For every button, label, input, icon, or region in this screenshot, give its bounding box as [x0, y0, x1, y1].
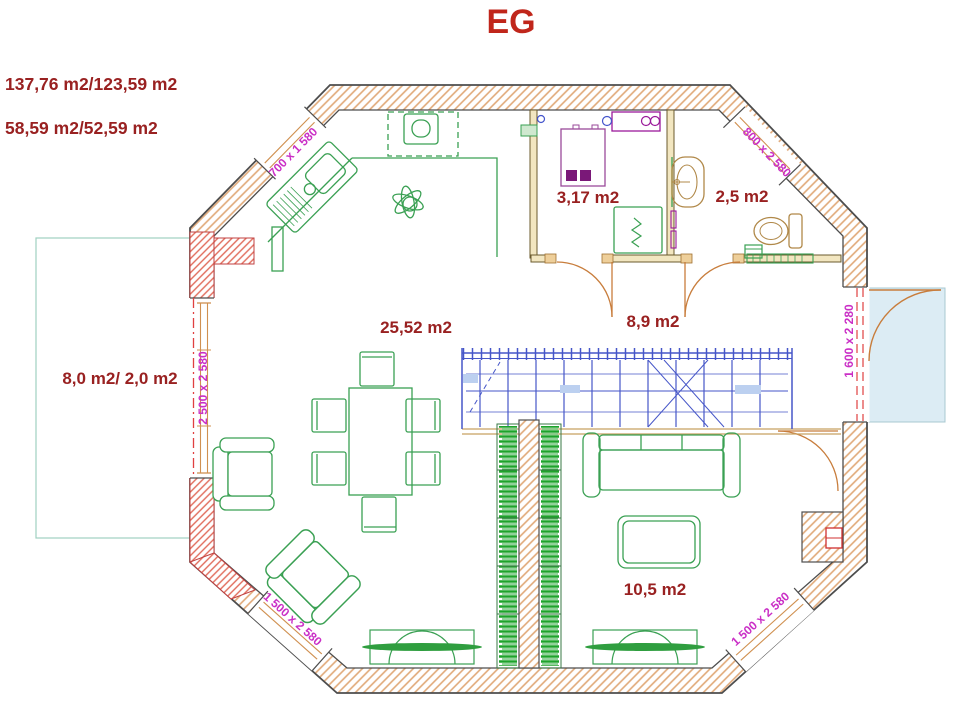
- label-living-dining: 25,52 m2: [380, 318, 452, 337]
- wall-pier-fireplace: [802, 512, 843, 562]
- plant-sideboard: [362, 630, 482, 664]
- connection-point: [603, 117, 612, 126]
- wall-vent: [521, 125, 537, 136]
- summary-line-2: 58,59 m2/52,59 m2: [5, 118, 158, 138]
- stair-steps: [480, 360, 760, 427]
- window-top-left-opening: [254, 107, 326, 179]
- washer-control: [566, 170, 577, 181]
- sofa-armrest: [723, 433, 740, 497]
- wc-door-arc: [685, 262, 740, 317]
- label-hall: 8,9 m2: [627, 312, 680, 331]
- stove: [404, 114, 438, 144]
- plant: [391, 185, 425, 219]
- connection-point: [538, 116, 545, 123]
- utility-door-arc: [557, 262, 612, 317]
- sofa-armrest: [583, 433, 600, 497]
- terrace-right: [869, 288, 945, 422]
- stove-burner: [412, 120, 430, 137]
- dining-set: [312, 352, 440, 532]
- summary-line-1: 137,76 m2/123,59 m2: [5, 74, 177, 94]
- dim-door-right: 1 600 x 2 280: [842, 304, 856, 378]
- upper-cabinets: [388, 112, 458, 156]
- terrace-left: [36, 238, 190, 538]
- floor-plan-page: 700 x 1 580 800 x 2 580 2 500 x 2 580 1 …: [0, 0, 960, 708]
- stair-door-arc: [778, 431, 838, 491]
- stair-highlight: [560, 385, 580, 393]
- stair-highlight: [735, 385, 761, 394]
- dining-table: [349, 388, 412, 495]
- chimney: [519, 420, 539, 668]
- armchair-left: [213, 438, 274, 510]
- sofa-back: [599, 435, 724, 450]
- stair-highlight: [463, 374, 478, 383]
- wall-radiator: [272, 227, 283, 271]
- floor-plan-canvas: 700 x 1 580 800 x 2 580 2 500 x 2 580 1 …: [0, 0, 960, 708]
- dim-terrace-door-left: 2 500 x 2 580: [196, 351, 210, 425]
- toilet-cistern: [789, 214, 802, 248]
- label-sitting-area: 10,5 m2: [624, 580, 686, 599]
- utility-room: [538, 112, 663, 253]
- plant-sideboard: [585, 630, 705, 664]
- sofa-group: [583, 433, 740, 568]
- shower-drain-symbol: [632, 218, 641, 247]
- bookshelf-column: [497, 420, 561, 668]
- toilet: [754, 218, 788, 245]
- sofa-seat: [599, 450, 724, 490]
- utility-counter: [612, 112, 660, 131]
- coffee-table: [618, 516, 700, 568]
- label-utility: 3,17 m2: [557, 188, 619, 207]
- page-title: EG: [486, 3, 535, 41]
- label-wc: 2,5 m2: [716, 187, 769, 206]
- label-terrace-left: 8,0 m2/ 2,0 m2: [62, 369, 177, 388]
- washer-control: [580, 170, 591, 181]
- kitchen-counter-edge: [352, 158, 497, 257]
